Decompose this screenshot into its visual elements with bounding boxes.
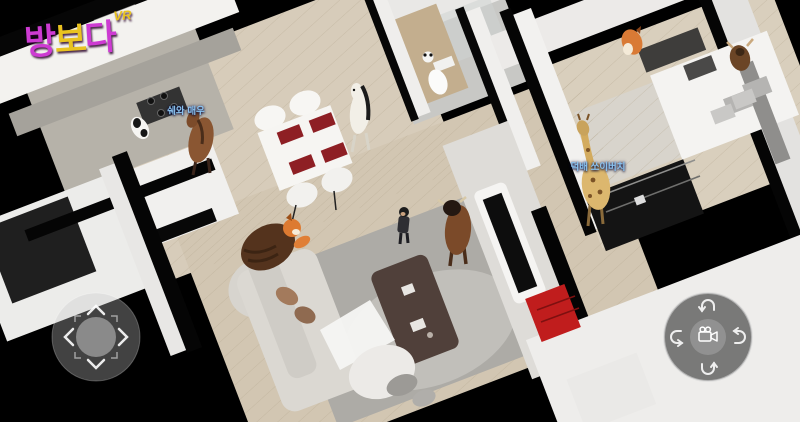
camera-joystick[interactable] — [662, 291, 754, 383]
logo-vr-badge: VR — [113, 7, 132, 23]
move-joystick[interactable] — [51, 292, 141, 382]
player-nametag: 덕배 쏘이버치 — [570, 159, 625, 173]
logo-syllable: 방 — [23, 22, 56, 63]
logo-syllable: 보 — [53, 20, 86, 61]
move-joystick-graphic[interactable] — [51, 292, 141, 382]
camera-joystick-center[interactable] — [690, 319, 726, 355]
joystick-knob[interactable] — [76, 317, 116, 357]
camera-joystick-graphic[interactable] — [662, 291, 754, 383]
panda-character — [423, 52, 434, 63]
game-viewport: 방보다VR 쉐와 매우 덕배 쏘이버치 — [0, 0, 800, 422]
logo-syllable: 다 — [83, 18, 116, 59]
app-logo: 방보다VR — [23, 8, 135, 60]
player-nametag: 쉐와 매우 — [167, 103, 205, 117]
